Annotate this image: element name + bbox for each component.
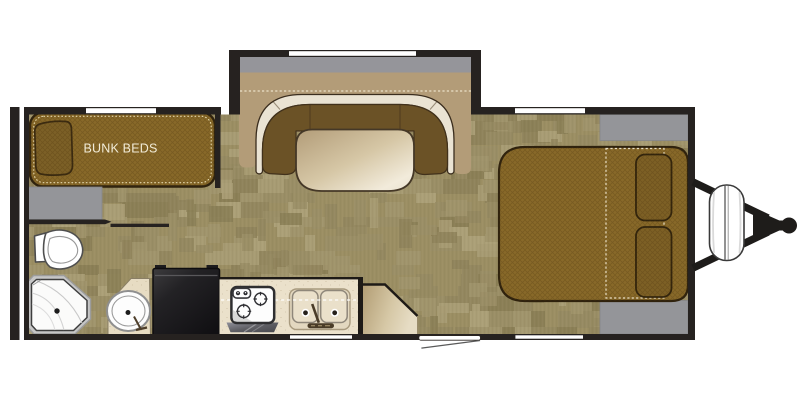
svg-text:BUNK BEDS: BUNK BEDS [83,141,157,155]
